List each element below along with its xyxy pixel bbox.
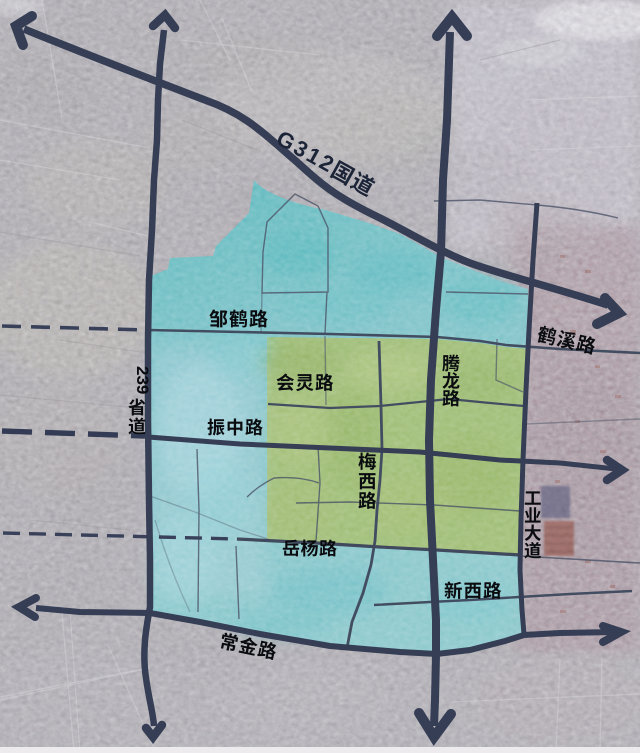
svg-text:239: 239 (133, 366, 152, 394)
